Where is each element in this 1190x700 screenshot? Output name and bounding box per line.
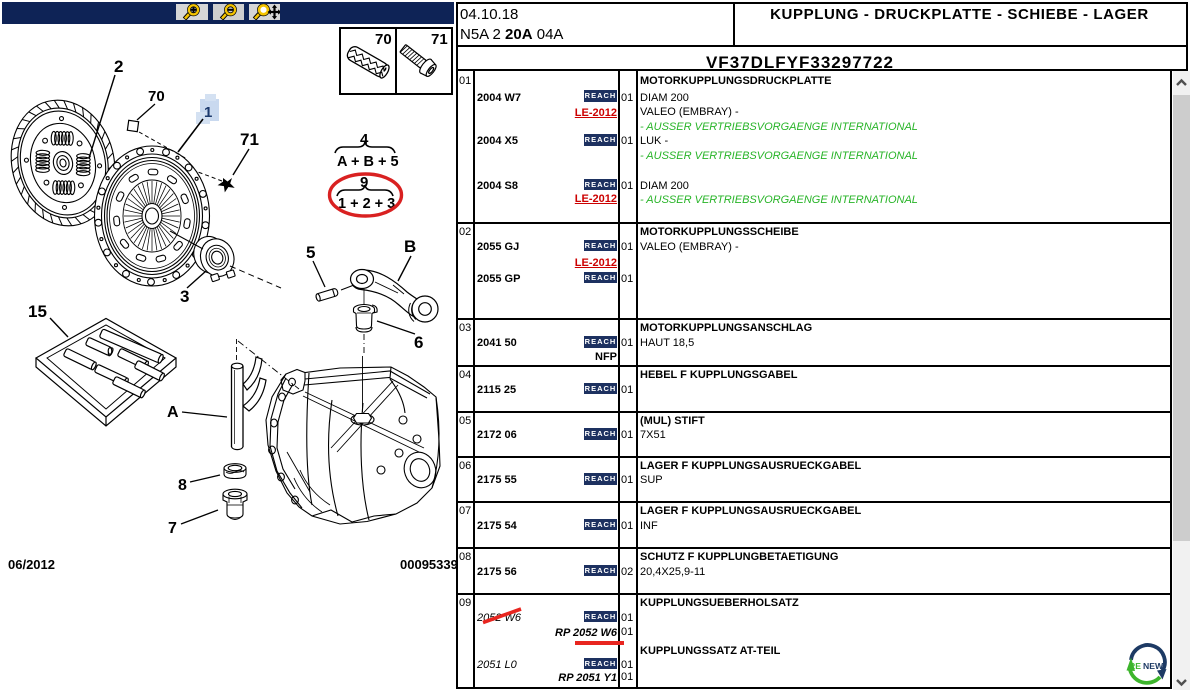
svg-text:A: A (167, 404, 179, 421)
svg-text:06/2012: 06/2012 (8, 557, 55, 572)
svg-text:70: 70 (375, 31, 392, 48)
svg-text:3: 3 (180, 287, 189, 306)
svg-text:1 + 2 + 3: 1 + 2 + 3 (338, 196, 395, 212)
svg-text:6: 6 (414, 333, 423, 352)
svg-text:00095339: 00095339 (400, 557, 458, 572)
svg-text:71: 71 (240, 130, 259, 149)
svg-text:7: 7 (168, 520, 177, 537)
svg-text:15: 15 (28, 302, 47, 321)
svg-text:2: 2 (114, 57, 123, 76)
svg-text:NEW: NEW (1143, 661, 1164, 671)
svg-text:A + B + 5: A + B + 5 (337, 154, 399, 170)
svg-text:71: 71 (431, 31, 448, 48)
svg-text:1: 1 (204, 104, 212, 121)
svg-text:8: 8 (178, 477, 187, 494)
svg-text:B: B (404, 237, 416, 256)
svg-text:RE: RE (1129, 661, 1141, 671)
svg-text:5: 5 (306, 243, 315, 262)
svg-text:70: 70 (148, 88, 165, 105)
